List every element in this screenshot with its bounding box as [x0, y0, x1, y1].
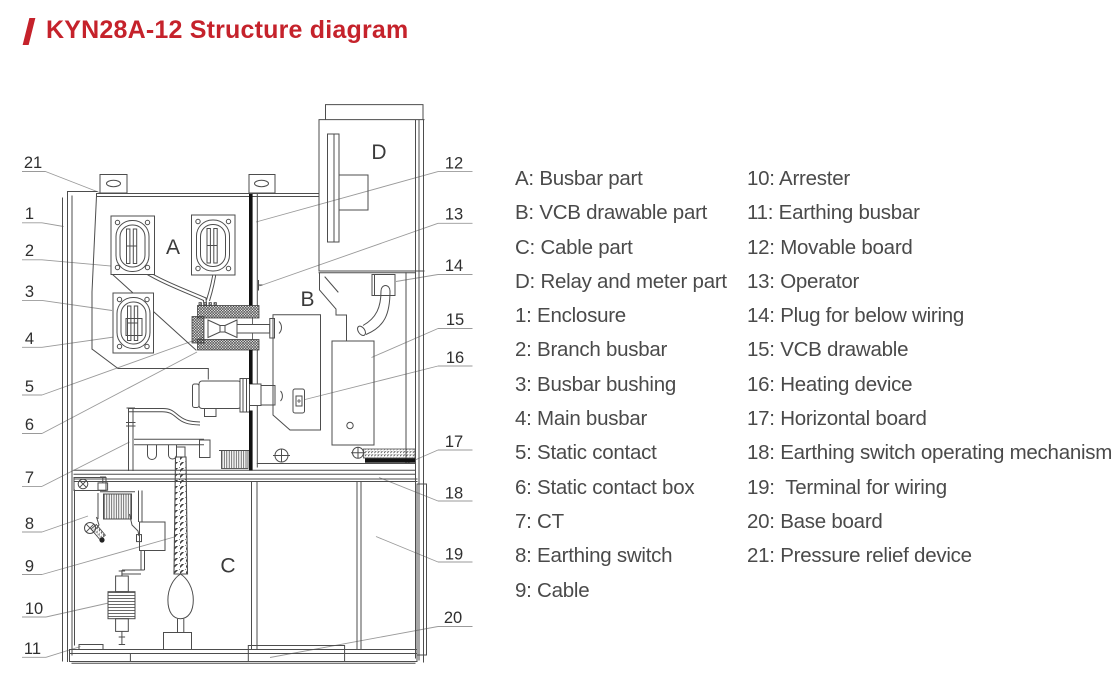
- svg-text:D: D: [371, 141, 386, 164]
- svg-text:A: A: [166, 236, 180, 259]
- svg-text:14: 14: [445, 257, 463, 275]
- svg-text:5: 5: [25, 378, 34, 396]
- svg-text:16: 16: [446, 349, 464, 367]
- svg-text:10: 10: [25, 600, 43, 618]
- svg-text:4: 4: [25, 330, 34, 348]
- svg-text:8: 8: [25, 515, 34, 533]
- svg-text:12: 12: [445, 155, 463, 173]
- svg-text:9: 9: [25, 558, 34, 576]
- svg-text:C: C: [220, 555, 235, 578]
- svg-text:3: 3: [25, 283, 34, 301]
- svg-text:7: 7: [25, 469, 34, 487]
- svg-text:11: 11: [24, 640, 41, 658]
- svg-text:2: 2: [25, 242, 34, 260]
- svg-text:21: 21: [24, 154, 42, 172]
- svg-text:19: 19: [445, 546, 463, 564]
- svg-text:B: B: [300, 288, 314, 311]
- svg-text:6: 6: [25, 416, 34, 434]
- svg-text:1: 1: [25, 205, 34, 223]
- svg-text:13: 13: [445, 206, 463, 224]
- svg-text:15: 15: [446, 311, 464, 329]
- svg-text:18: 18: [445, 485, 463, 503]
- svg-text:20: 20: [444, 609, 462, 627]
- svg-text:17: 17: [445, 433, 463, 451]
